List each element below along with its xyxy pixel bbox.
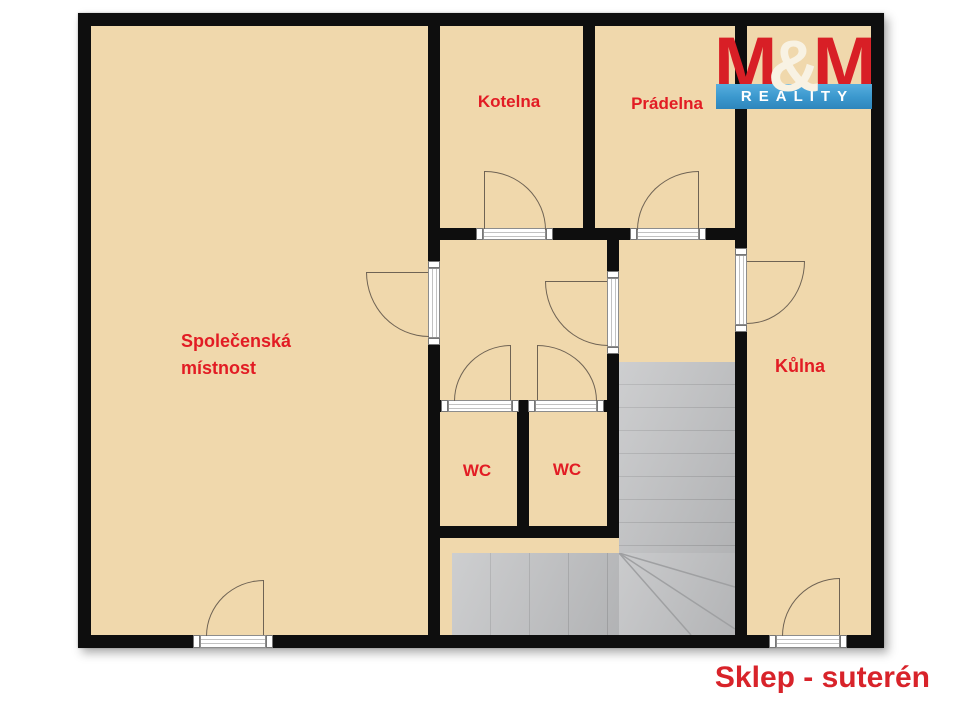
- room-label-spolecenska-line1: Společenská: [181, 331, 291, 351]
- room-label-kulna: Kůlna: [738, 356, 862, 376]
- room-label-spolecenska-line2: místnost: [181, 358, 256, 378]
- staircase-vertical-flight: [619, 362, 735, 553]
- plan-caption: Sklep - suterén: [688, 660, 930, 696]
- room-label-spolecenska: Společenská místnost: [181, 328, 341, 382]
- wall-kotelna-pradelna: [583, 26, 595, 240]
- staircase-bottom-flight: [452, 553, 619, 635]
- floor-plan-page: Společenská místnost Kotelna Prádelna Ků…: [0, 0, 960, 720]
- door-opening-kulna-side: [735, 255, 747, 325]
- logo-ampersand: &: [768, 29, 820, 105]
- room-label-kotelna: Kotelna: [447, 92, 571, 112]
- wall-outer-left: [78, 13, 91, 648]
- winder-tread-lines: [619, 553, 735, 635]
- mm-reality-logo: M & M REALITY: [716, 28, 872, 109]
- door-opening-wc-right: [535, 400, 597, 412]
- door-opening-hall-landing: [607, 278, 619, 347]
- wall-below-wc: [428, 526, 619, 538]
- room-label-pradelna: Prádelna: [604, 94, 730, 114]
- room-label-wc-right: WC: [527, 460, 607, 480]
- door-opening-spolecenska-exterior: [200, 635, 266, 648]
- door-opening-wc-left: [448, 400, 512, 412]
- wall-outer-right: [871, 13, 884, 648]
- door-opening-kulna-exterior: [776, 635, 840, 648]
- staircase-winder-corner: [619, 553, 735, 635]
- room-label-wc-left: WC: [437, 461, 517, 481]
- door-opening-spolecenska-hall: [428, 268, 440, 338]
